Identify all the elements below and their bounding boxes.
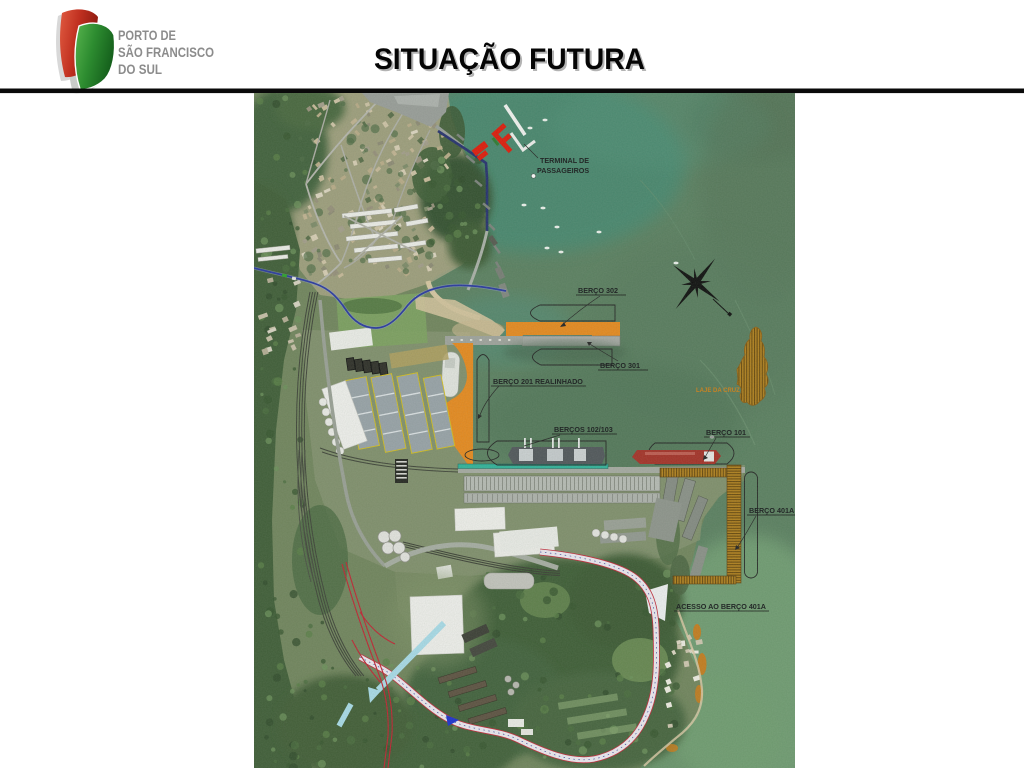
svg-text:SITUAÇÃO FUTURA: SITUAÇÃO FUTURA [374,42,645,76]
svg-text:SÃO FRANCISCO: SÃO FRANCISCO [118,43,214,60]
svg-text:DO SUL: DO SUL [118,61,162,77]
svg-text:PORTO DE: PORTO DE [118,27,176,43]
